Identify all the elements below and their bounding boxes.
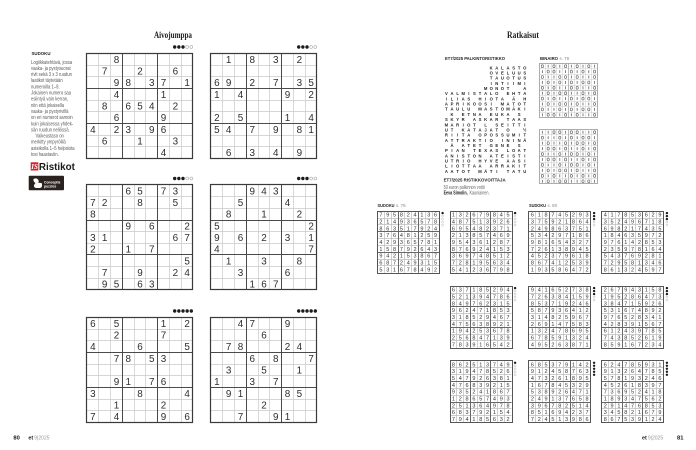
svg-text:s. 78: s. 78 [396, 203, 406, 208]
svg-text:SUDOKU: SUDOKU [378, 203, 395, 208]
svg-text:235978164: 235978164 [604, 247, 662, 253]
svg-text:BINAIRO: BINAIRO [540, 56, 559, 61]
svg-text:976528341: 976528341 [604, 315, 662, 321]
svg-text:4: 4 [161, 148, 167, 159]
svg-text:AATOTMÄTITATU: AATOTMÄTITATU [445, 169, 526, 174]
svg-text:876924153: 876924153 [452, 247, 510, 253]
svg-text:452618397: 452618397 [604, 383, 662, 389]
svg-text:851694237: 851694237 [531, 410, 589, 416]
svg-text:487513926: 487513926 [452, 220, 510, 226]
svg-text:esiintyä vain kerran,: esiintyä vain kerran, [31, 96, 68, 101]
svg-text:375921864: 375921864 [531, 220, 589, 226]
svg-text:981654327: 981654327 [531, 240, 589, 246]
svg-text:743852619: 743852619 [604, 336, 662, 342]
svg-text:132679845: 132679845 [452, 213, 510, 219]
svg-text:794185632: 794185632 [452, 417, 510, 423]
svg-text:726138945: 726138945 [531, 247, 589, 253]
svg-text:728195634: 728195634 [452, 261, 510, 267]
svg-text:859167234: 859167234 [604, 342, 662, 348]
svg-text:8: 8 [114, 55, 120, 66]
svg-text:943: 943 [249, 186, 279, 197]
svg-text:6: 6 [261, 331, 267, 342]
svg-text:vaaka- ja pystyrivillä: vaaka- ja pystyrivillä [31, 109, 69, 114]
svg-text:352496718: 352496718 [604, 220, 662, 226]
svg-text:849762315: 849762315 [452, 301, 510, 307]
svg-text:291476853: 291476853 [604, 403, 662, 409]
svg-text:678591324: 678591324 [531, 336, 589, 342]
svg-text:941652738: 941652738 [531, 288, 589, 294]
svg-text:267943158: 267943158 [604, 288, 662, 294]
svg-text:736952418: 736952418 [604, 390, 662, 396]
svg-text:935241867: 935241867 [452, 390, 510, 396]
svg-text:on eri numerot samoin: on eri numerot samoin [31, 115, 73, 120]
svg-text:795824136: 795824136 [379, 213, 437, 219]
svg-text:merkitty ympyröillä: merkitty ympyröillä [31, 139, 66, 144]
svg-text:314825967: 314825967 [531, 315, 589, 321]
svg-text:249863751: 249863751 [531, 226, 589, 232]
svg-text:Jokainen numero saa: Jokainen numero saa [31, 90, 71, 95]
svg-text:543769281: 543769281 [604, 254, 662, 260]
svg-text:452379618: 452379618 [531, 254, 589, 260]
svg-text:193586472: 193586472 [531, 267, 589, 273]
svg-text:726384159: 726384159 [531, 295, 589, 301]
svg-text:niin että jokaisella: niin että jokaisella [31, 103, 64, 108]
svg-text:962471853: 962471853 [452, 308, 510, 314]
svg-text:687249315: 687249315 [379, 261, 437, 267]
svg-text:538926471: 538926471 [531, 390, 589, 396]
svg-text:167: 167 [249, 280, 278, 291]
svg-text:683792154: 683792154 [452, 410, 510, 416]
svg-text:531674892: 531674892 [604, 308, 662, 314]
svg-text:417853629: 417853629 [604, 213, 662, 219]
svg-text:IS: IS [30, 163, 38, 171]
svg-text:et: et [642, 436, 647, 442]
svg-text:695482371: 695482371 [452, 226, 510, 232]
svg-text:s. 80: s. 80 [548, 203, 558, 208]
svg-text:184635972: 184635972 [604, 233, 662, 239]
svg-text:867539124: 867539124 [604, 417, 662, 423]
svg-text:867412539: 867412539 [531, 261, 589, 267]
svg-text:534297186: 534297186 [531, 233, 589, 239]
svg-text:SUDOKU: SUDOKU [529, 203, 546, 208]
svg-text:521394786: 521394786 [452, 295, 510, 301]
svg-text:318529467: 318529467 [452, 315, 510, 321]
svg-text:5: 5 [184, 256, 190, 267]
svg-text:861324597: 861324597 [604, 267, 662, 273]
svg-text:167845329: 167845329 [531, 383, 589, 389]
svg-text:384715926: 384715926 [604, 301, 662, 307]
svg-text:783916542: 783916542 [452, 342, 510, 348]
svg-text:473261895: 473261895 [531, 376, 589, 382]
svg-text:puzzles: puzzles [44, 184, 56, 188]
svg-text:214936578: 214936578 [379, 220, 437, 226]
svg-text:Ristikot: Ristikot [39, 162, 76, 173]
svg-text:213857469: 213857469 [452, 233, 510, 239]
svg-text:976142853: 976142853 [604, 240, 662, 246]
svg-text:913264785: 913264785 [604, 369, 662, 375]
svg-text:376481259: 376481259 [379, 233, 437, 239]
svg-text:547926381: 547926381 [452, 376, 510, 382]
svg-text:132478695: 132478695 [531, 329, 589, 335]
svg-text:429365781: 429365781 [379, 240, 437, 246]
svg-text:618745293: 618745293 [531, 213, 589, 219]
svg-text:541236798: 541236798 [452, 267, 510, 273]
svg-text:2: 2 [261, 401, 267, 412]
svg-text:495263871: 495263871 [531, 342, 589, 348]
svg-text:862513749: 862513749 [452, 362, 510, 368]
svg-text:8: 8 [90, 210, 96, 221]
svg-text:942153867: 942153867 [379, 254, 437, 260]
svg-text:396782514: 396782514 [531, 403, 589, 409]
svg-text:81: 81 [677, 436, 684, 442]
svg-text:189347562: 189347562 [604, 397, 662, 403]
svg-text:80: 80 [13, 436, 19, 442]
svg-text:rivit sekä 3 x 3 ruudun: rivit sekä 3 x 3 ruudun [31, 72, 72, 77]
svg-text:laatikot täytetään: laatikot täytetään [31, 78, 63, 83]
svg-text:ET7/2025 PALKINTORISTIKKO: ET7/2025 PALKINTORISTIKKO [445, 56, 506, 61]
svg-text:612439785: 612439785 [604, 329, 662, 335]
svg-text:369748512: 369748512 [452, 254, 510, 260]
svg-text:698217435: 698217435 [604, 226, 662, 232]
svg-text:194253678: 194253678 [452, 329, 510, 335]
svg-text:863517924: 863517924 [379, 226, 437, 232]
svg-text:912458763: 912458763 [531, 369, 589, 375]
svg-text:624785931: 624785931 [604, 362, 662, 368]
svg-text:476839215: 476839215 [452, 383, 510, 389]
svg-text:9|2025: 9|2025 [648, 436, 663, 442]
svg-text:Eeva Simolin,: Eeva Simolin, [444, 191, 468, 197]
svg-text:531678492: 531678492 [379, 267, 437, 273]
svg-text:853719246: 853719246 [531, 301, 589, 307]
svg-text:954361287: 954361287 [452, 240, 510, 246]
svg-text:319478526: 319478526 [452, 369, 510, 375]
svg-text:269147583: 269147583 [531, 322, 589, 328]
svg-text:345821679: 345821679 [604, 410, 662, 416]
svg-text:195286473: 195286473 [604, 295, 662, 301]
svg-text:158792643: 158792643 [379, 247, 437, 253]
svg-text:249137658: 249137658 [531, 397, 589, 403]
svg-text:ATTRAKTIOININÄ: ATTRAKTIOININÄ [445, 138, 526, 143]
svg-text:428391567: 428391567 [604, 322, 662, 328]
svg-text:724513986: 724513986 [531, 417, 589, 423]
svg-text:128657493: 128657493 [452, 397, 510, 403]
svg-text:256847139: 256847139 [452, 336, 510, 342]
svg-text:vaaka- ja pystysuorat: vaaka- ja pystysuorat [31, 66, 71, 71]
svg-text:tosi haastaviin.: tosi haastaviin. [31, 152, 59, 157]
svg-text:685379142: 685379142 [531, 362, 589, 368]
svg-text:Ratkaisut: Ratkaisut [507, 30, 540, 40]
svg-text:Vaikeustaso on: Vaikeustaso on [36, 133, 65, 138]
svg-text:Kauniainen.: Kauniainen. [470, 191, 490, 197]
svg-text:asteikolla 1–5 helpoista: asteikolla 1–5 helpoista [31, 146, 75, 151]
svg-text:475638921: 475638921 [452, 322, 510, 328]
svg-text:9|2025: 9|2025 [34, 436, 49, 442]
svg-text:578193246: 578193246 [604, 376, 662, 382]
svg-text:Aivojumppa: Aivojumppa [154, 30, 192, 40]
svg-text:729581346: 729581346 [604, 261, 662, 267]
svg-text:Logiikkatehtävä, jossa: Logiikkatehtävä, jossa [31, 59, 73, 64]
svg-text:TAULUMASTOMÄKI: TAULUMASTOMÄKI [445, 107, 525, 112]
svg-text:sän ruudun neliössä.: sän ruudun neliössä. [31, 127, 70, 132]
svg-text:s. 79: s. 79 [560, 56, 570, 61]
svg-text:ET7/2025 RISTIKKOVOITTAJA: ET7/2025 RISTIKKOVOITTAJA [444, 177, 507, 182]
svg-text:587936412: 587936412 [531, 308, 589, 314]
svg-text:kuin jokaisessa yhdek-: kuin jokaisessa yhdek- [31, 121, 74, 126]
svg-text:251364978: 251364978 [452, 403, 510, 409]
svg-text:SUDOKU: SUDOKU [32, 51, 51, 57]
svg-text:637185294: 637185294 [452, 288, 510, 294]
svg-text:et: et [28, 436, 33, 442]
svg-text:numeroilla 1–9.: numeroilla 1–9. [31, 84, 60, 89]
